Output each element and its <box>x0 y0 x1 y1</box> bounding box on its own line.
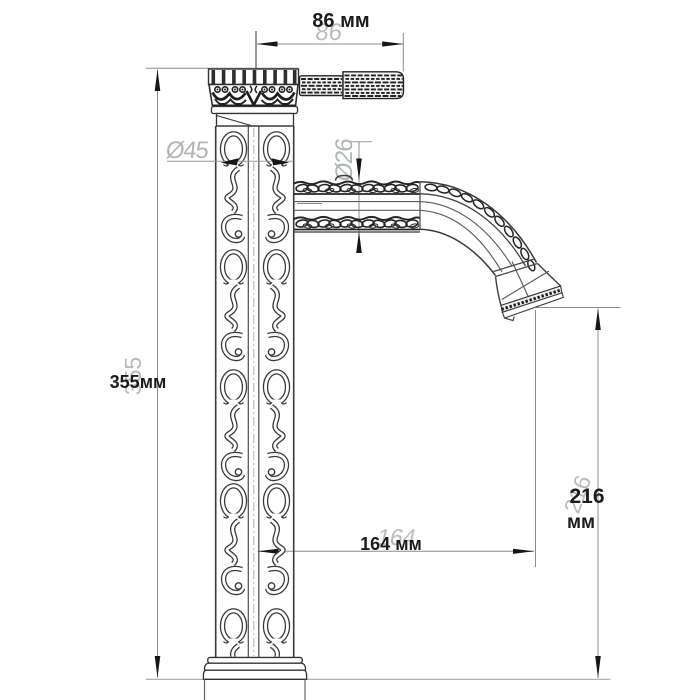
svg-text:355мм: 355мм <box>110 372 167 392</box>
svg-text:164 мм: 164 мм <box>360 534 422 554</box>
svg-text:Ø45: Ø45 <box>165 137 210 164</box>
svg-text:86 мм: 86 мм <box>312 10 369 32</box>
svg-text:216: 216 <box>569 485 604 508</box>
svg-text:мм: мм <box>567 512 595 533</box>
